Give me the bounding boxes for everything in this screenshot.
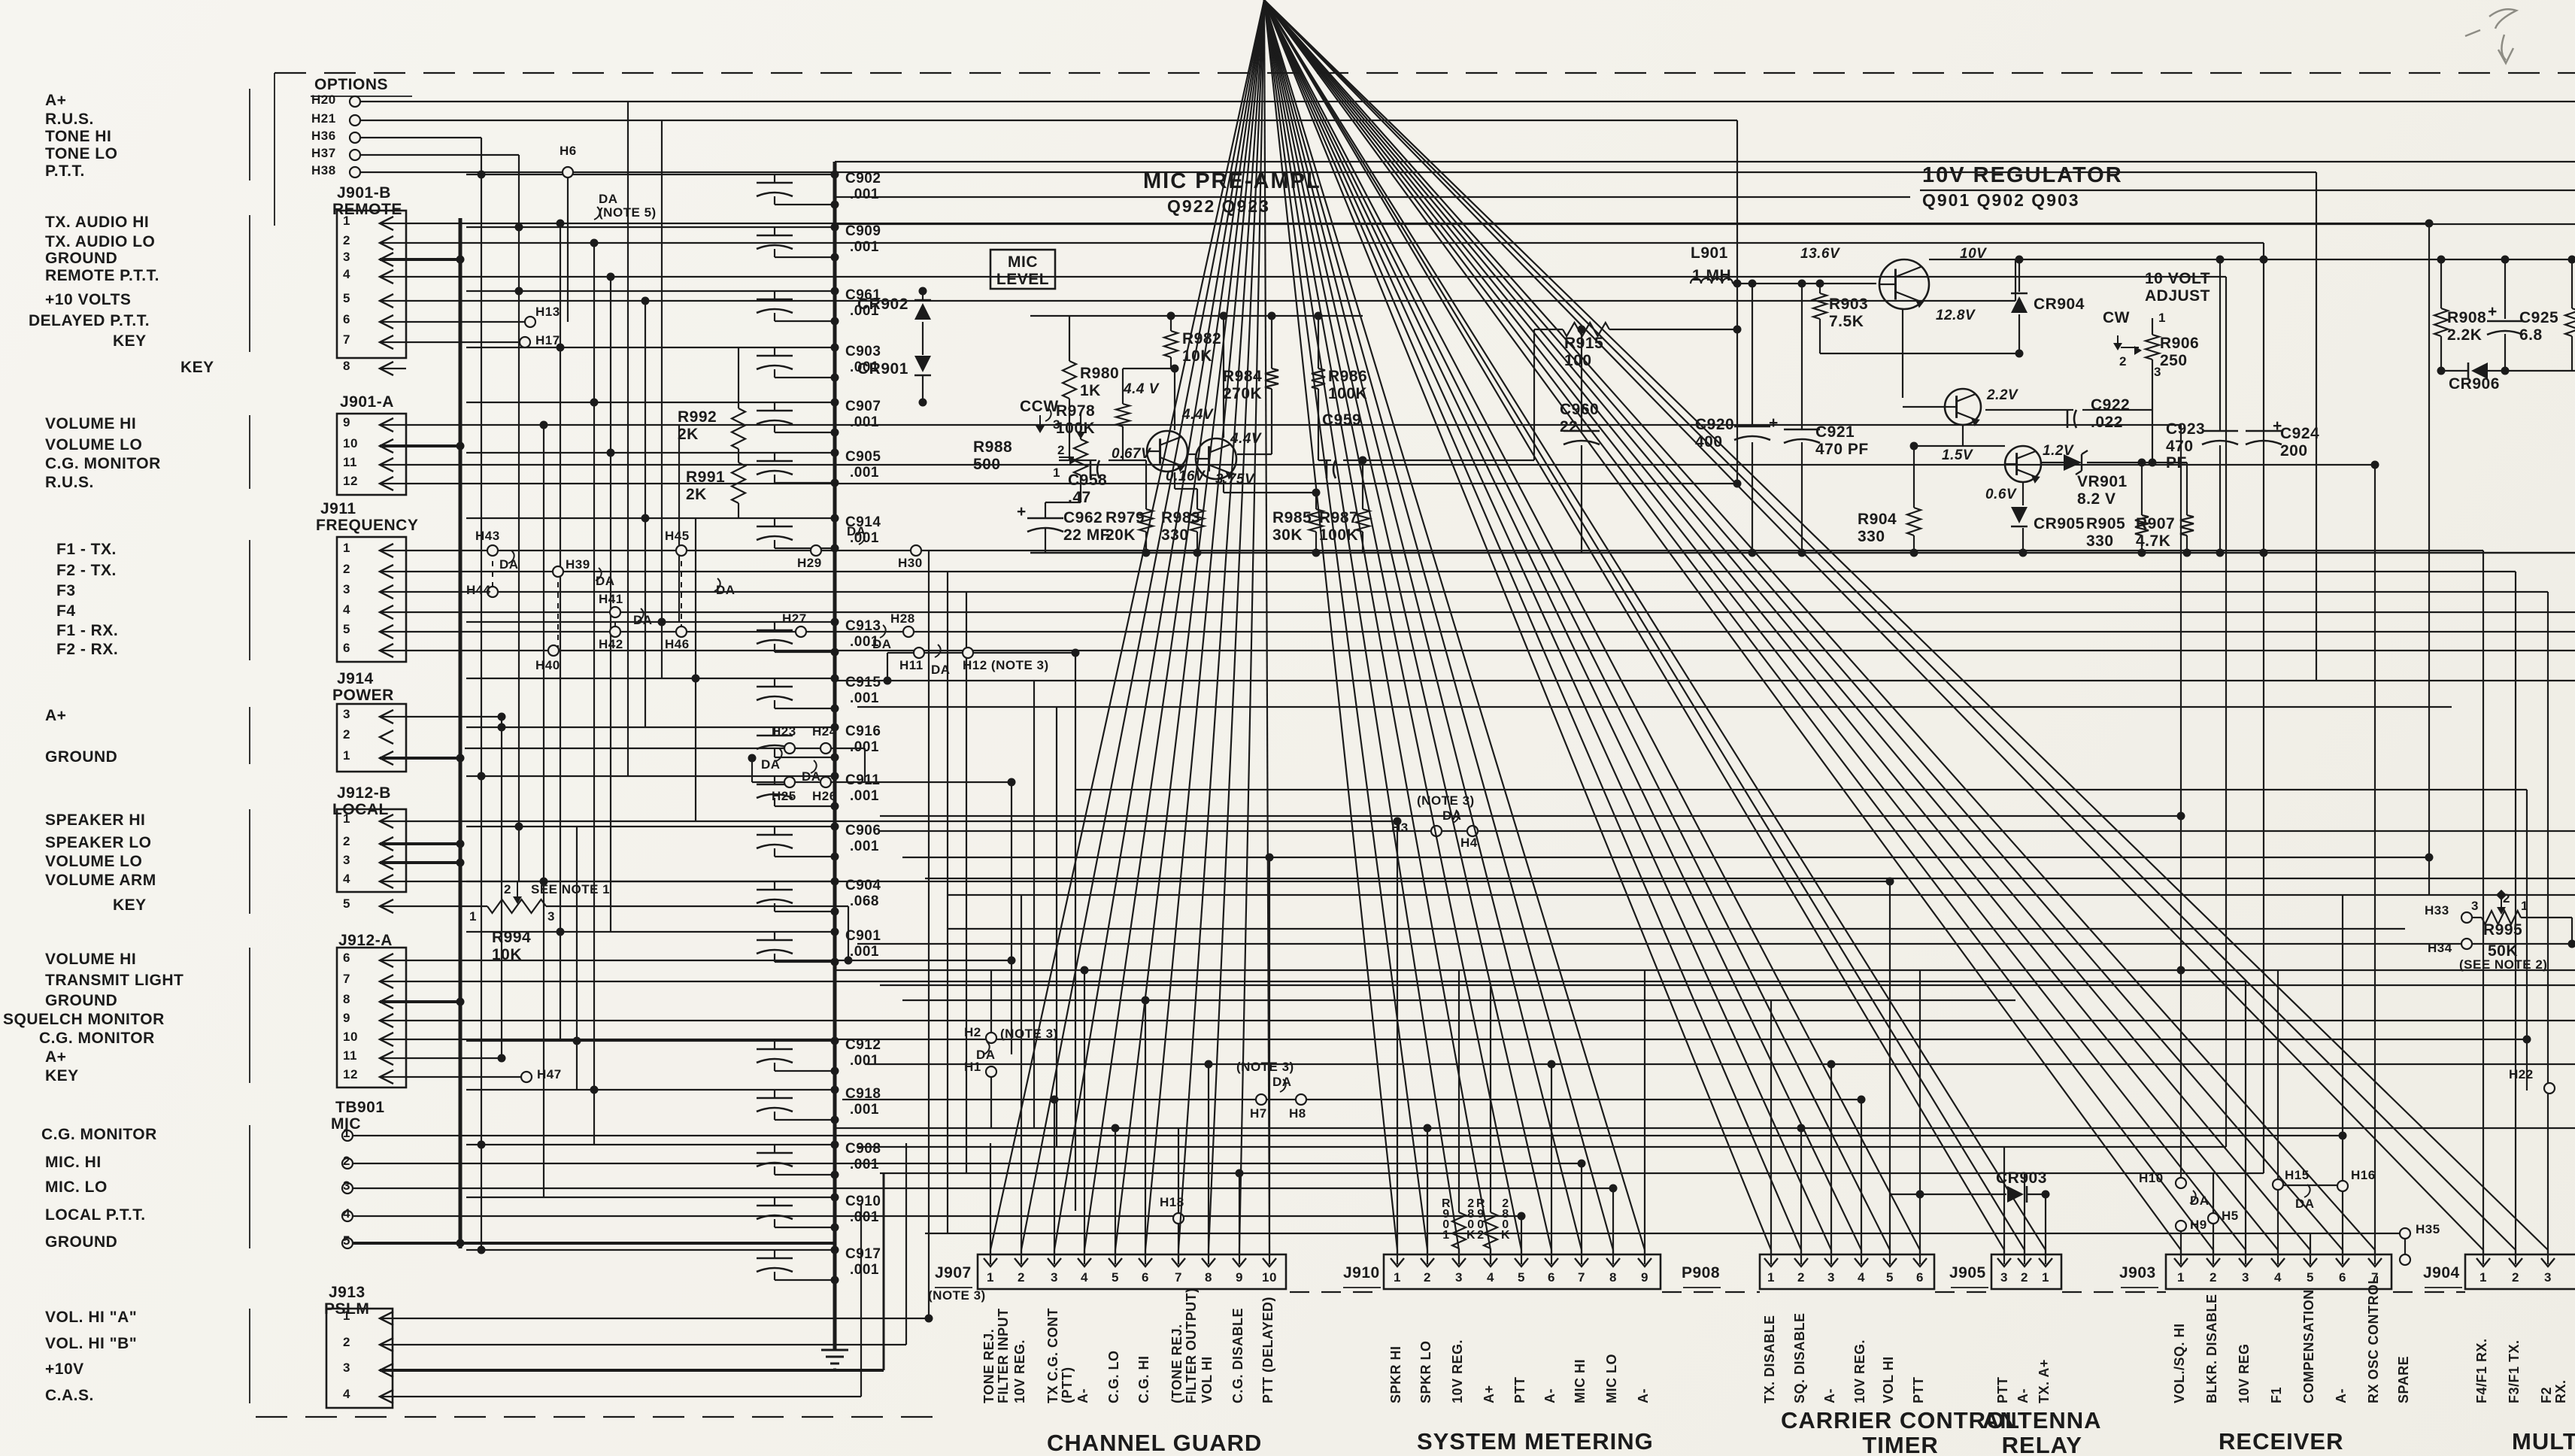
label-jumpers-h16: H16 xyxy=(2351,1169,2376,1182)
pin-label: F2 - RX. xyxy=(56,642,118,659)
cap-ref: C915 xyxy=(845,675,881,691)
label-jumpers-h34: H34 xyxy=(2428,942,2452,955)
pin-signal-label: F3/F1 TX. xyxy=(2507,1339,2522,1403)
pin-signal-label: MIC HI xyxy=(1573,1359,1588,1403)
cap-ref: C906 xyxy=(845,824,881,839)
cap-ref: C917 xyxy=(845,1247,881,1263)
label-jumpers-h30: H30 xyxy=(898,557,923,570)
label-reg-parts-cr905: CR905 xyxy=(2034,516,2085,533)
label-reg-parts-l901: L901 xyxy=(1691,245,1728,262)
pin-signal-label: BLKR. DISABLE xyxy=(2205,1294,2219,1404)
pin-label: VOLUME HI xyxy=(45,951,136,969)
pin-signal-label: F2 RX. xyxy=(2540,1368,2568,1403)
label-pin-nums-n1: 1 xyxy=(2521,899,2528,913)
pin-number: 1 xyxy=(343,749,350,763)
pin-number: 3 xyxy=(343,708,350,721)
label-reg-parts-vr901: VR901 8.2 V xyxy=(2077,474,2128,508)
label-mic-parts-c959: C959 xyxy=(1322,412,1361,429)
pin-number: 1 xyxy=(343,214,350,228)
label-reg-parts-c922: C922 .022 xyxy=(2091,397,2130,431)
label-mic-parts-v2: 4.4V xyxy=(1182,408,1213,423)
label-misc-r994: R994 10K xyxy=(492,930,531,963)
pin-number: 2 xyxy=(343,234,350,247)
label-jumpers-da: DA xyxy=(931,663,951,677)
label-pin-nums-n2: 2 xyxy=(504,883,511,896)
pin-signal-label: A- xyxy=(1636,1388,1651,1403)
pin-signal-label: A- xyxy=(2016,1388,2031,1403)
pin-number: 12 xyxy=(343,1068,358,1081)
option-signal-label: R.U.S. xyxy=(45,111,94,129)
label-reg-parts-r908: R908 2.2K xyxy=(2447,310,2486,344)
pin-label: KEY xyxy=(180,359,214,377)
pin-number: 7 xyxy=(343,972,350,986)
label-sym-plus: + xyxy=(2273,418,2282,435)
label-jumpers-h5: H5 xyxy=(2222,1209,2239,1223)
connector-id: J911 xyxy=(320,501,356,518)
pin-label: KEY xyxy=(113,333,147,350)
cap-ref: C909 xyxy=(845,224,881,240)
pin-number: 3 xyxy=(343,1361,350,1375)
cap-val: .001 xyxy=(850,1263,879,1279)
pin-label: SPEAKER HI xyxy=(45,812,145,830)
label-pin-nums-n2: 2 xyxy=(2503,892,2510,905)
pin-number: 8 xyxy=(1604,1271,1622,1285)
pin-signal-label: (TONE REJ. FILTER OUTPUT) xyxy=(1170,1288,1199,1403)
label-jumpers-da: DA xyxy=(2295,1197,2315,1211)
pin-label: REMOTE P.T.T. xyxy=(45,268,159,285)
label-jumpers-h1: H1 xyxy=(964,1060,981,1074)
pin-number: 3 xyxy=(1450,1271,1468,1285)
option-signal-label: TONE HI xyxy=(45,129,111,146)
pin-number: 2 xyxy=(1418,1271,1436,1285)
spare-label: SPARE xyxy=(2397,1356,2411,1403)
pin-number: 8 xyxy=(343,359,350,373)
label-jumpers-h28: H28 xyxy=(890,612,915,626)
label-reg-parts-cr906: CR906 xyxy=(2449,376,2500,393)
label-jumpers-h3: H3 xyxy=(1391,821,1409,835)
pin-number: 4 xyxy=(1852,1271,1870,1285)
label-jumpers-h7: H7 xyxy=(1250,1107,1267,1121)
pin-signal-label: TONE REJ. FILTER INPUT xyxy=(982,1308,1011,1403)
pin-label: VOLUME LO xyxy=(45,854,142,871)
label-jumpers-h12: H12 (NOTE 3) xyxy=(963,659,1049,672)
label-reg-adjust: 10 VOLT ADJUST xyxy=(2145,271,2210,305)
label-jumpers-da: DA xyxy=(761,758,781,772)
cap-ref: C902 xyxy=(845,171,881,187)
pin-number: 1 xyxy=(343,1309,350,1323)
label-jumpers-h47: H47 xyxy=(537,1068,562,1081)
label-jumpers-h6: H6 xyxy=(560,144,577,158)
section-title: ANTENNA RELAY xyxy=(1982,1408,2102,1456)
connector-id: J901-B xyxy=(337,185,391,202)
label-jumpers-h10: H10 xyxy=(2139,1172,2164,1185)
label-jumpers-note3: (NOTE 3) xyxy=(1236,1060,1294,1074)
label-jumpers-h11: H11 xyxy=(899,659,924,672)
pin-label: F2 - TX. xyxy=(56,563,117,580)
pin-number: 3 xyxy=(343,250,350,264)
connector-id: P908 xyxy=(1682,1265,1720,1282)
pin-label: C.A.S. xyxy=(45,1388,94,1405)
pin-label: +10 VOLTS xyxy=(45,292,131,309)
pin-number: 1 xyxy=(2172,1271,2190,1285)
pin-number: 2 xyxy=(2015,1271,2034,1285)
cap-val: .001 xyxy=(850,945,879,960)
pin-label: VOL. HI "B" xyxy=(45,1336,137,1353)
label-pin-nums-n3: 3 xyxy=(2154,366,2161,379)
option-signal-label: A+ xyxy=(45,93,66,110)
cap-ref: C903 xyxy=(845,344,881,360)
pin-number: 3 xyxy=(343,583,350,596)
label-jumpers-da: DA xyxy=(499,558,519,572)
label-jumpers-da: DA xyxy=(847,525,866,538)
r901-ref: R 9 0 1 xyxy=(1439,1199,1453,1241)
label-jumpers-h41: H41 xyxy=(599,593,623,606)
label-jumpers-h26: H26 xyxy=(812,790,837,803)
pin-label: SQUELCH MONITOR xyxy=(3,1012,165,1029)
pin-signal-label: SPKR LO xyxy=(1419,1340,1433,1403)
option-pad-label: H21 xyxy=(311,112,336,126)
pin-number: 2 xyxy=(2204,1271,2222,1285)
label-jumpers-da: DA xyxy=(2190,1194,2210,1208)
label-pin-nums-n3: 3 xyxy=(547,910,555,924)
pin-number: 6 xyxy=(1911,1271,1929,1285)
pin-signal-label: A+ xyxy=(1482,1385,1497,1403)
pin-label: VOLUME ARM xyxy=(45,872,156,890)
pin-signal-label: TX C.G. CONT (PTT) xyxy=(1046,1308,1075,1403)
pin-signal-label: C.G. DISABLE xyxy=(1231,1308,1245,1403)
connector-name: LOCAL xyxy=(332,802,389,819)
pin-number: 2 xyxy=(2507,1271,2525,1285)
cap-ref: C913 xyxy=(845,619,881,635)
pin-number: 8 xyxy=(1200,1271,1218,1285)
label-jumpers-h39: H39 xyxy=(566,558,590,572)
label-reg-parts-r907: R907 4.7K xyxy=(2136,516,2175,550)
pin-number: 9 xyxy=(343,416,350,429)
pin-number: 3 xyxy=(343,854,350,867)
pin-signal-label: A- xyxy=(1076,1388,1090,1403)
pin-label: C.G. MONITOR xyxy=(45,456,161,473)
pin-signal-label: C.G. HI xyxy=(1137,1355,1151,1403)
pin-label: MIC. HI xyxy=(45,1154,102,1172)
label-mic-parts-r986: R986 100K xyxy=(1328,369,1367,402)
pin-signal-label: VOL HI xyxy=(1200,1356,1215,1403)
cap-val: .001 xyxy=(850,1054,879,1069)
connector-id: J914 xyxy=(337,671,374,688)
pin-signal-label: F4/F1 RX. xyxy=(2475,1338,2489,1403)
label-mic-parts-r978: R978 100K xyxy=(1056,403,1095,437)
pin-number: 5 xyxy=(343,1234,350,1248)
label-jumpers-h29: H29 xyxy=(797,557,822,570)
pin-number: 1 xyxy=(981,1271,999,1285)
pin-number: 1 xyxy=(1388,1271,1406,1285)
pin-number: 3 xyxy=(1822,1271,1840,1285)
pin-signal-label: A- xyxy=(2334,1388,2349,1403)
pin-number: 10 xyxy=(343,437,358,450)
option-signal-label: TONE LO xyxy=(45,146,117,163)
pin-label: TRANSMIT LIGHT xyxy=(45,972,183,990)
pin-number: 7 xyxy=(1169,1271,1187,1285)
label-jumpers-h46: H46 xyxy=(665,638,690,651)
label-reg-parts-c923: C923 470 PF xyxy=(2166,421,2205,472)
pin-number: 4 xyxy=(343,1207,350,1221)
cap-ref: C918 xyxy=(845,1087,881,1103)
option-pad-label: H38 xyxy=(311,164,336,177)
cap-val: .001 xyxy=(850,466,879,481)
pin-label: R.U.S. xyxy=(45,475,94,492)
label-reg-parts-v136: 13.6V xyxy=(1800,247,1840,262)
pin-label: TX. AUDIO HI xyxy=(45,214,149,232)
label-jumpers-h18: H18 xyxy=(1160,1196,1184,1209)
label-misc-c960: C960 22 xyxy=(1560,402,1599,435)
label-jumpers-da: DA xyxy=(1442,809,1462,823)
label-reg-parts-r903: R903 7.5K xyxy=(1829,296,1868,330)
section-title: MULTI xyxy=(2512,1429,2575,1454)
cap-ref: C911 xyxy=(845,773,880,789)
label-mic-parts-r985: R985 30K xyxy=(1272,510,1312,544)
connector-note: (NOTE 3) xyxy=(928,1289,986,1303)
label-misc-cr901: CR901 xyxy=(857,361,908,378)
cap-val: .001 xyxy=(850,839,879,855)
section-title: SYSTEM METERING xyxy=(1417,1429,1654,1454)
cap-val: .001 xyxy=(850,1210,879,1226)
pin-signal-label: RX OSC CONTROL xyxy=(2367,1276,2381,1403)
pin-signal-label: TX. DISABLE xyxy=(1763,1315,1777,1403)
cap-val: .001 xyxy=(850,187,879,203)
label-jumpers-h23: H23 xyxy=(772,725,796,739)
label-reg-parts-v06: 0.6V xyxy=(1985,487,2016,503)
label-jumpers-da: DA xyxy=(716,584,735,597)
label-jumpers-da-note5: DA (NOTE 5) xyxy=(599,193,657,220)
label-mic-devices: Q922 Q923 xyxy=(1167,197,1270,216)
cap-val: .068 xyxy=(850,894,879,910)
label-pin-nums-n2: 2 xyxy=(1057,444,1065,457)
label-reg-parts-c925: C925 6.8 xyxy=(2519,310,2558,344)
cap-val: .001 xyxy=(850,789,879,805)
label-jumpers-da: DA xyxy=(633,614,653,627)
label-jumpers-h40: H40 xyxy=(535,659,560,672)
connector-id: J912-A xyxy=(338,933,393,950)
label-misc-r991: R991 2K xyxy=(686,469,725,503)
label-mic-parts-ccw: CCW xyxy=(1020,399,1059,416)
label-jumpers-da: DA xyxy=(802,770,821,784)
pin-label: GROUND xyxy=(45,250,117,268)
pin-number: 4 xyxy=(343,603,350,617)
section-title: RECEIVER xyxy=(2219,1429,2343,1454)
label-mic-parts-r988: R988 500 xyxy=(973,439,1012,473)
label-reg-parts-v128: 12.8V xyxy=(1936,308,1975,324)
pin-number: 2 xyxy=(343,563,350,576)
pin-number: 2 xyxy=(1792,1271,1810,1285)
label-jumpers-h22: H22 xyxy=(2509,1068,2534,1081)
pin-number: 2 xyxy=(343,1336,350,1349)
pin-signal-label: VOL./SQ. HI xyxy=(2173,1323,2187,1403)
label-reg-parts-v10: 10V xyxy=(1960,247,1986,262)
pin-number: 7 xyxy=(1573,1271,1591,1285)
pin-signal-label: 10V REG xyxy=(2237,1343,2252,1403)
label-reg-parts-r905: R905 330 xyxy=(2086,516,2125,550)
label-mic-parts-v5: 0.16V xyxy=(1166,469,1205,485)
option-pad-label: H20 xyxy=(311,93,336,107)
pin-number: 2 xyxy=(343,728,350,742)
cap-ref: C916 xyxy=(845,724,881,740)
label-pin-nums-n1: 1 xyxy=(2158,311,2166,325)
pin-number: 5 xyxy=(2301,1271,2319,1285)
cap-ref: C908 xyxy=(845,1142,881,1157)
pin-label: GROUND xyxy=(45,1234,117,1251)
label-jumpers-h27: H27 xyxy=(782,612,807,626)
pin-number: 3 xyxy=(2237,1271,2255,1285)
pin-signal-label: A- xyxy=(1543,1388,1557,1403)
label-reg-parts-c924: C924 200 xyxy=(2280,426,2319,460)
cap-val: .001 xyxy=(850,240,879,256)
label-pin-nums-n3: 3 xyxy=(2471,899,2479,913)
pin-label: GROUND xyxy=(45,993,117,1010)
pin-number: 6 xyxy=(1136,1271,1154,1285)
pin-signal-label: 10V REG. xyxy=(1013,1339,1027,1403)
pin-label: C.G. MONITOR xyxy=(41,1127,157,1144)
handwritten-mark xyxy=(2465,9,2516,63)
pin-number: 5 xyxy=(343,292,350,305)
pin-number: 1 xyxy=(2474,1271,2492,1285)
label-reg-cw: CW xyxy=(2103,310,2130,327)
pin-signal-label: MIC LO xyxy=(1605,1354,1619,1403)
pin-number: 1 xyxy=(343,812,350,826)
option-pad-label: H37 xyxy=(311,147,336,160)
pin-signal-label: PTT (DELAYED) xyxy=(1261,1297,1275,1403)
connector-id: J905 xyxy=(1949,1265,1986,1282)
connector-id: TB901 xyxy=(335,1100,385,1117)
option-pad-label: H36 xyxy=(311,129,336,143)
cap-ref: C912 xyxy=(845,1038,881,1054)
label-mic-parts-v6: 3.75V xyxy=(1215,472,1254,488)
pin-signal-label: PTT xyxy=(1996,1377,2010,1404)
cap-val: .001 xyxy=(850,1157,879,1173)
pin-number: 1 xyxy=(343,1127,350,1140)
pin-number: 3 xyxy=(1995,1271,2013,1285)
cap-ref: C904 xyxy=(845,878,881,894)
label-jumpers-h42: H42 xyxy=(599,638,623,651)
label-mic-parts-r987: R987 100K xyxy=(1319,510,1358,544)
pin-number: 11 xyxy=(343,1049,357,1063)
pin-number: 2 xyxy=(1012,1271,1030,1285)
label-jumpers-h33: H33 xyxy=(2425,904,2449,918)
label-pin-nums-n1: 1 xyxy=(469,910,477,924)
pin-number: 4 xyxy=(1482,1271,1500,1285)
label-misc-cr903: CR903 xyxy=(1996,1170,2047,1188)
pin-number: 7 xyxy=(343,333,350,347)
pin-number: 5 xyxy=(1881,1271,1899,1285)
cap-val: .001 xyxy=(850,415,879,431)
pin-number: 1 xyxy=(1762,1271,1780,1285)
pin-number: 2 xyxy=(343,1154,350,1168)
pin-signal-label: VOL HI xyxy=(1882,1356,1896,1403)
cap-val: .001 xyxy=(850,691,879,707)
label-reg-parts-c920: C920 400 xyxy=(1695,417,1734,450)
label-mic-parts-r982: R982 10K xyxy=(1182,331,1221,365)
label-jumpers-note3: (NOTE 3) xyxy=(1000,1027,1058,1041)
label-jumpers-h44: H44 xyxy=(466,584,491,597)
pin-number: 11 xyxy=(343,456,357,469)
label-mic-parts-r980: R980 1K xyxy=(1080,366,1119,399)
pin-number: 3 xyxy=(1045,1271,1063,1285)
pin-number: 1 xyxy=(2037,1271,2055,1285)
section-title: CHANNEL GUARD xyxy=(1047,1430,1262,1455)
pin-number: 5 xyxy=(1106,1271,1124,1285)
pin-signal-label: 10V REG. xyxy=(1853,1339,1867,1403)
pin-number: 5 xyxy=(343,897,350,911)
pin-signal-label: 10V REG. xyxy=(1451,1339,1465,1403)
pin-label: F4 xyxy=(56,603,76,620)
pin-label: TX. AUDIO LO xyxy=(45,234,155,251)
pin-label: SPEAKER LO xyxy=(45,835,152,852)
label-mic-parts-v4: 0.67V xyxy=(1112,447,1151,463)
label-misc-cr902: CR902 xyxy=(857,296,908,314)
label-jumpers-h17: H17 xyxy=(535,334,560,347)
pin-label: KEY xyxy=(45,1068,79,1085)
pin-label: MIC. LO xyxy=(45,1179,108,1197)
connector-id: J904 xyxy=(2423,1265,2460,1282)
label-jumpers-da: DA xyxy=(872,638,892,651)
connector-name: POWER xyxy=(332,687,394,705)
label-mic-parts-r983: R983 330 xyxy=(1161,510,1200,544)
label-jumpers-h25: H25 xyxy=(772,790,796,803)
label-sym-plus: + xyxy=(1017,504,1027,521)
label-pin-nums-n1: 1 xyxy=(1053,466,1060,480)
label-mic-parts-r979: R979 20K xyxy=(1106,510,1145,544)
pin-number: 4 xyxy=(343,268,350,281)
label-mic-parts-v1: 4.4 V xyxy=(1124,382,1159,398)
label-reg-parts-l901v: 1 MH xyxy=(1692,268,1731,285)
schematic-canvas: C902.001C909.001C961.001C903.001C907.001… xyxy=(0,0,2575,1456)
connector-id: J910 xyxy=(1343,1265,1380,1282)
r902-ref: R 9 0 2 xyxy=(1474,1199,1488,1241)
label-mic-title: MIC PRE-AMPL xyxy=(1143,170,1321,193)
pin-number: 6 xyxy=(343,313,350,326)
pin-label: LOCAL P.T.T. xyxy=(45,1207,146,1224)
label-jumpers-h13: H13 xyxy=(535,305,560,319)
label-reg-parts-r904: R904 330 xyxy=(1858,511,1897,545)
label-reg-title: 10V REGULATOR xyxy=(1922,164,2123,187)
pin-number: 9 xyxy=(1636,1271,1654,1285)
cap-ref: C905 xyxy=(845,450,881,466)
connector-id: J901-A xyxy=(340,394,394,411)
cap-ref: C910 xyxy=(845,1194,881,1210)
cap-ref: C901 xyxy=(845,929,881,945)
label-reg-parts-c921: C921 470 PF xyxy=(1815,424,1869,458)
pin-label: A+ xyxy=(45,1049,66,1066)
pin-number: 1 xyxy=(343,541,350,555)
pin-number: 9 xyxy=(1230,1271,1248,1285)
label-jumpers-da: DA xyxy=(1272,1075,1292,1089)
pin-label: VOLUME LO xyxy=(45,437,142,454)
label-pin-nums-n2: 2 xyxy=(2119,355,2127,369)
pin-signal-label: PTT xyxy=(1912,1377,1926,1404)
pin-number: 5 xyxy=(343,623,350,636)
label-jumpers-h9: H9 xyxy=(2190,1218,2207,1232)
pin-label: +10V xyxy=(45,1361,84,1379)
label-sym-plus: + xyxy=(2488,304,2498,321)
pin-number: 12 xyxy=(343,475,358,488)
label-mic-parts-c962: C962 22 MF xyxy=(1063,510,1110,544)
label-jumpers-da: DA xyxy=(596,575,615,588)
label-reg-parts-v22: 2.2V xyxy=(1987,388,2018,404)
pin-number: 6 xyxy=(1542,1271,1560,1285)
label-jumpers-h4: H4 xyxy=(1460,836,1478,850)
pin-number: 6 xyxy=(343,951,350,965)
option-signal-label: P.T.T. xyxy=(45,163,85,180)
pin-number: 8 xyxy=(343,993,350,1006)
r902-val: 2 8 0 K xyxy=(1499,1199,1512,1241)
